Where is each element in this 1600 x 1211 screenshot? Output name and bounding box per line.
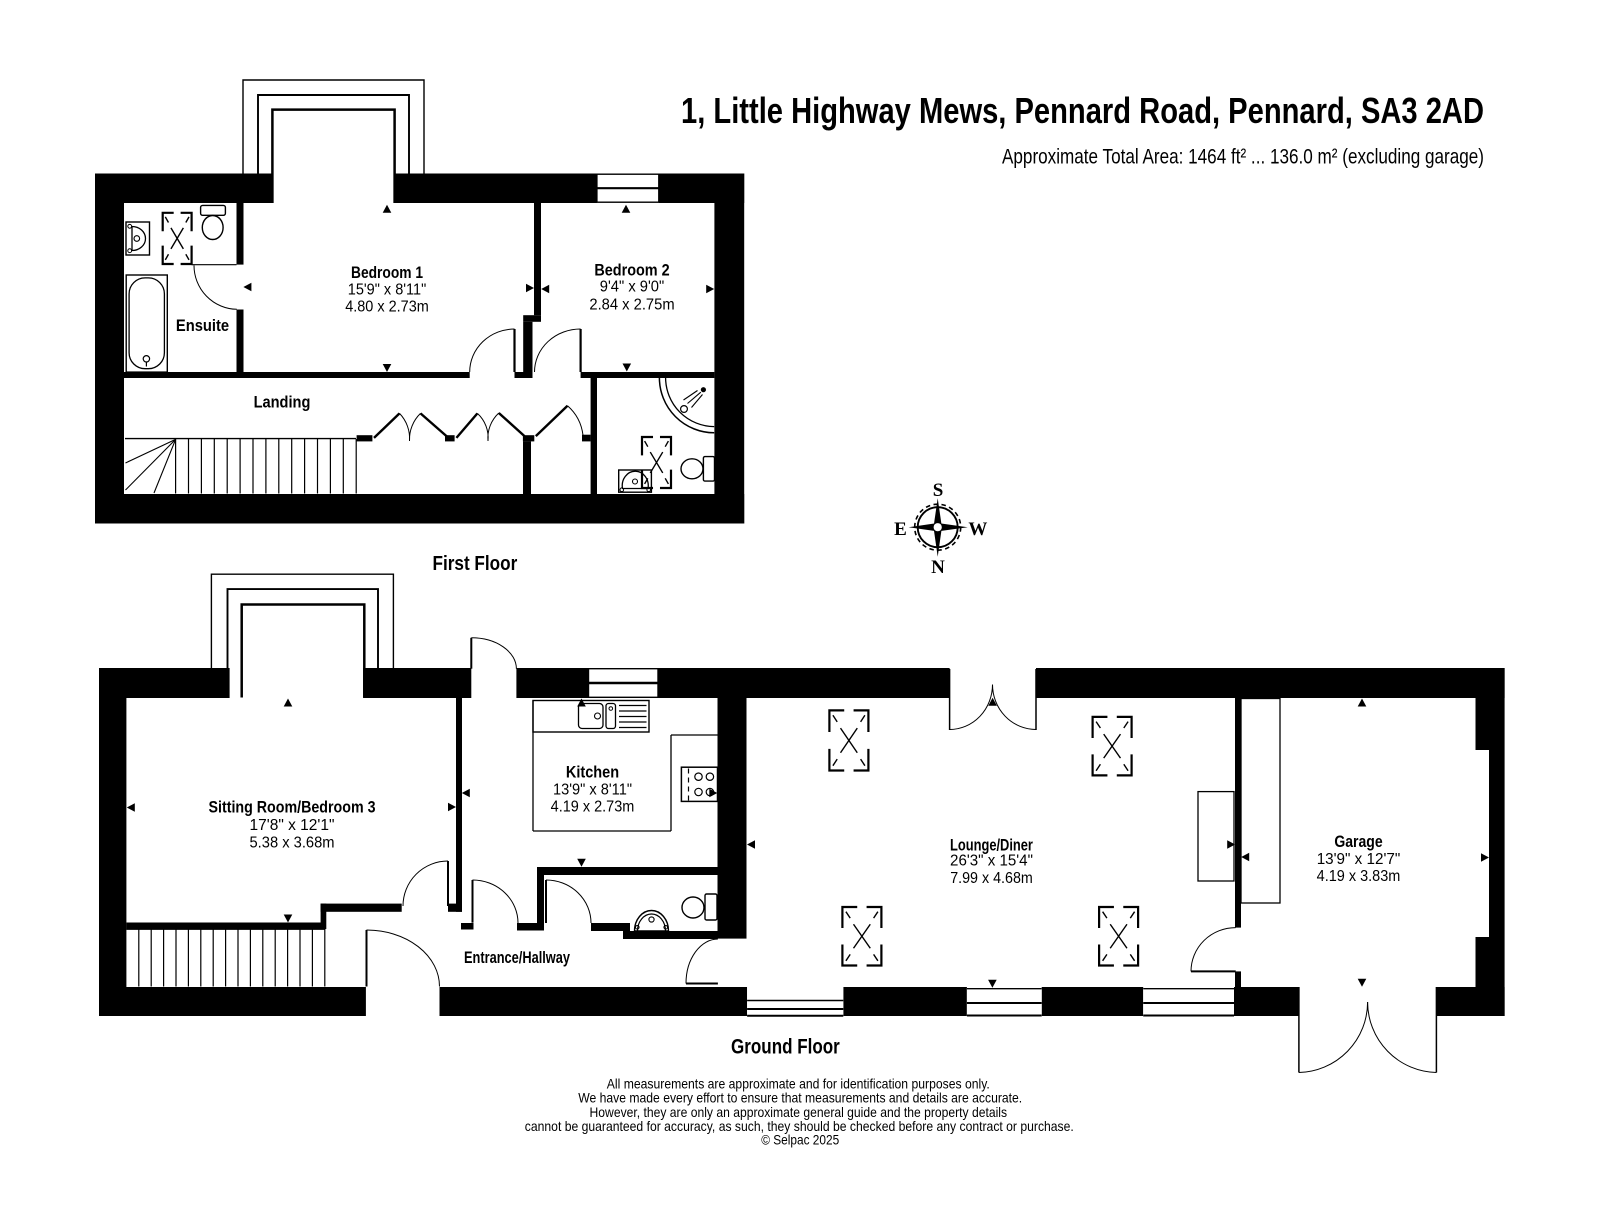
svg-text:Sitting Room/Bedroom 3: Sitting Room/Bedroom 3	[209, 798, 376, 817]
svg-text:S: S	[933, 480, 944, 501]
svg-text:© Selpac 2025: © Selpac 2025	[761, 1132, 839, 1148]
svg-text:1, Little Highway Mews, Pennar: 1, Little Highway Mews, Pennard Road, Pe…	[681, 90, 1484, 131]
svg-text:Bedroom 1: Bedroom 1	[351, 263, 423, 282]
svg-text:Garage: Garage	[1334, 832, 1382, 851]
svg-text:Kitchen: Kitchen	[566, 763, 619, 782]
svg-text:N: N	[931, 557, 945, 578]
svg-text:5.38 x 3.68m: 5.38 x 3.68m	[250, 835, 335, 852]
svg-text:9'4" x 9'0": 9'4" x 9'0"	[600, 279, 664, 296]
svg-text:Approximate Total Area: 1464 f: Approximate Total Area: 1464 ft² ... 136…	[1002, 146, 1484, 169]
svg-text:15'9" x 8'11": 15'9" x 8'11"	[348, 282, 427, 299]
svg-text:13'9" x 12'7": 13'9" x 12'7"	[1317, 851, 1401, 868]
svg-text:17'8" x 12'1": 17'8" x 12'1"	[250, 817, 335, 834]
svg-text:Bedroom 2: Bedroom 2	[594, 261, 669, 280]
svg-text:4.80 x 2.73m: 4.80 x 2.73m	[345, 299, 429, 316]
svg-text:Landing: Landing	[254, 393, 311, 412]
svg-text:Ground Floor: Ground Floor	[731, 1034, 840, 1058]
svg-text:26'3" x 15'4": 26'3" x 15'4"	[950, 853, 1033, 870]
svg-text:2.84 x 2.75m: 2.84 x 2.75m	[589, 297, 674, 314]
svg-text:13'9" x 8'11": 13'9" x 8'11"	[553, 782, 632, 799]
svg-text:Entrance/Hallway: Entrance/Hallway	[464, 948, 570, 967]
svg-text:E: E	[894, 519, 907, 540]
svg-text:Ensuite: Ensuite	[176, 316, 229, 335]
svg-text:7.99 x 4.68m: 7.99 x 4.68m	[950, 870, 1033, 887]
svg-text:4.19 x 3.83m: 4.19 x 3.83m	[1317, 868, 1401, 885]
svg-text:First Floor: First Floor	[433, 553, 518, 575]
svg-text:W: W	[968, 519, 987, 540]
svg-text:4.19 x 2.73m: 4.19 x 2.73m	[551, 799, 635, 816]
